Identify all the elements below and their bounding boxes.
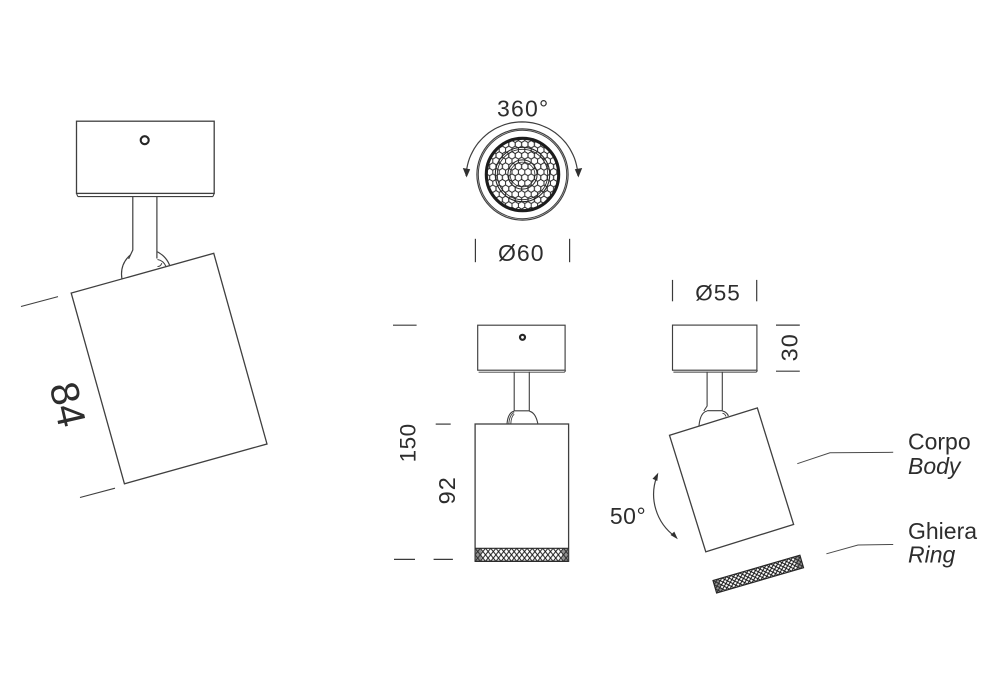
svg-text:Body: Body (908, 453, 962, 479)
svg-text:Ghiera: Ghiera (908, 518, 977, 544)
svg-text:Ø55: Ø55 (695, 280, 741, 305)
svg-text:Corpo: Corpo (908, 429, 971, 455)
svg-text:84: 84 (41, 378, 94, 431)
svg-text:92: 92 (434, 476, 460, 504)
svg-text:Ø60: Ø60 (498, 240, 544, 266)
svg-text:30: 30 (777, 333, 803, 361)
svg-text:150: 150 (395, 423, 420, 462)
svg-text:50°: 50° (610, 503, 646, 529)
svg-text:360°: 360° (497, 96, 549, 122)
svg-text:Ring: Ring (908, 542, 956, 568)
